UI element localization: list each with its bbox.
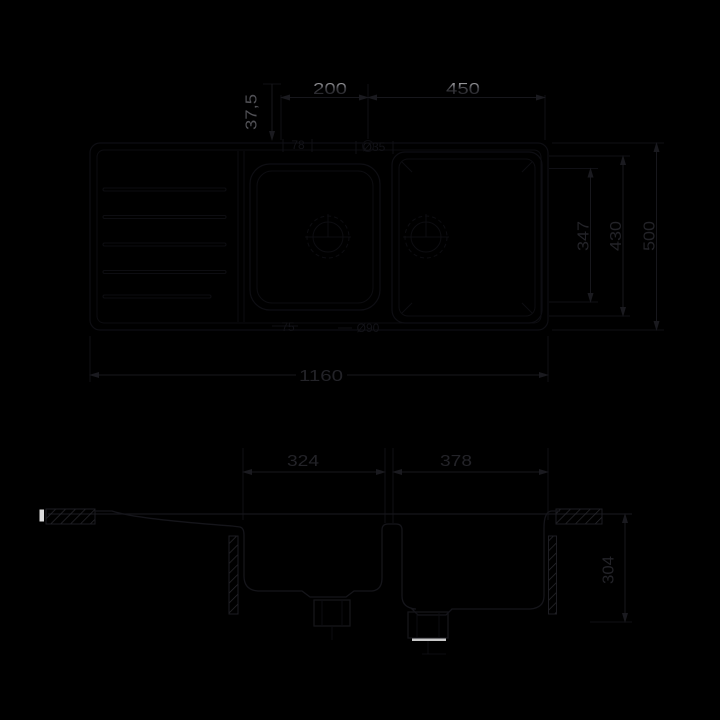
background bbox=[0, 0, 720, 720]
trap-white-mark bbox=[412, 639, 446, 642]
dim-304-label: 304 bbox=[601, 556, 618, 584]
countertop-hatch-right bbox=[556, 509, 602, 524]
dim-378-label: 378 bbox=[440, 453, 472, 470]
annotation-75: 75 bbox=[281, 320, 295, 334]
countertop-hatch-left bbox=[46, 509, 95, 524]
dim-37-5-label: 37,5 bbox=[244, 94, 261, 130]
annotation-78: 78 bbox=[291, 138, 305, 152]
annotation-drain-diameter: Ø90 bbox=[357, 321, 380, 335]
dim-500-label: 500 bbox=[642, 221, 659, 251]
dim-324-label: 324 bbox=[287, 453, 319, 470]
dim-1160-label: 1160 bbox=[299, 368, 343, 385]
bowl-wall-hatch-right bbox=[549, 536, 557, 614]
dim-450-label: 450 bbox=[446, 81, 480, 98]
dim-200-label: 200 bbox=[313, 81, 347, 98]
dim-430-label: 430 bbox=[608, 221, 625, 251]
dim-347-label: 347 bbox=[576, 221, 593, 251]
edge-white-mark bbox=[40, 510, 45, 522]
bowl-wall-hatch-left bbox=[229, 536, 238, 614]
annotation-tap-diameter: Ø35 bbox=[363, 140, 386, 154]
sink-technical-drawing: 37,5 200 450 78 Ø35 347 430 500 1160 bbox=[0, 0, 720, 720]
